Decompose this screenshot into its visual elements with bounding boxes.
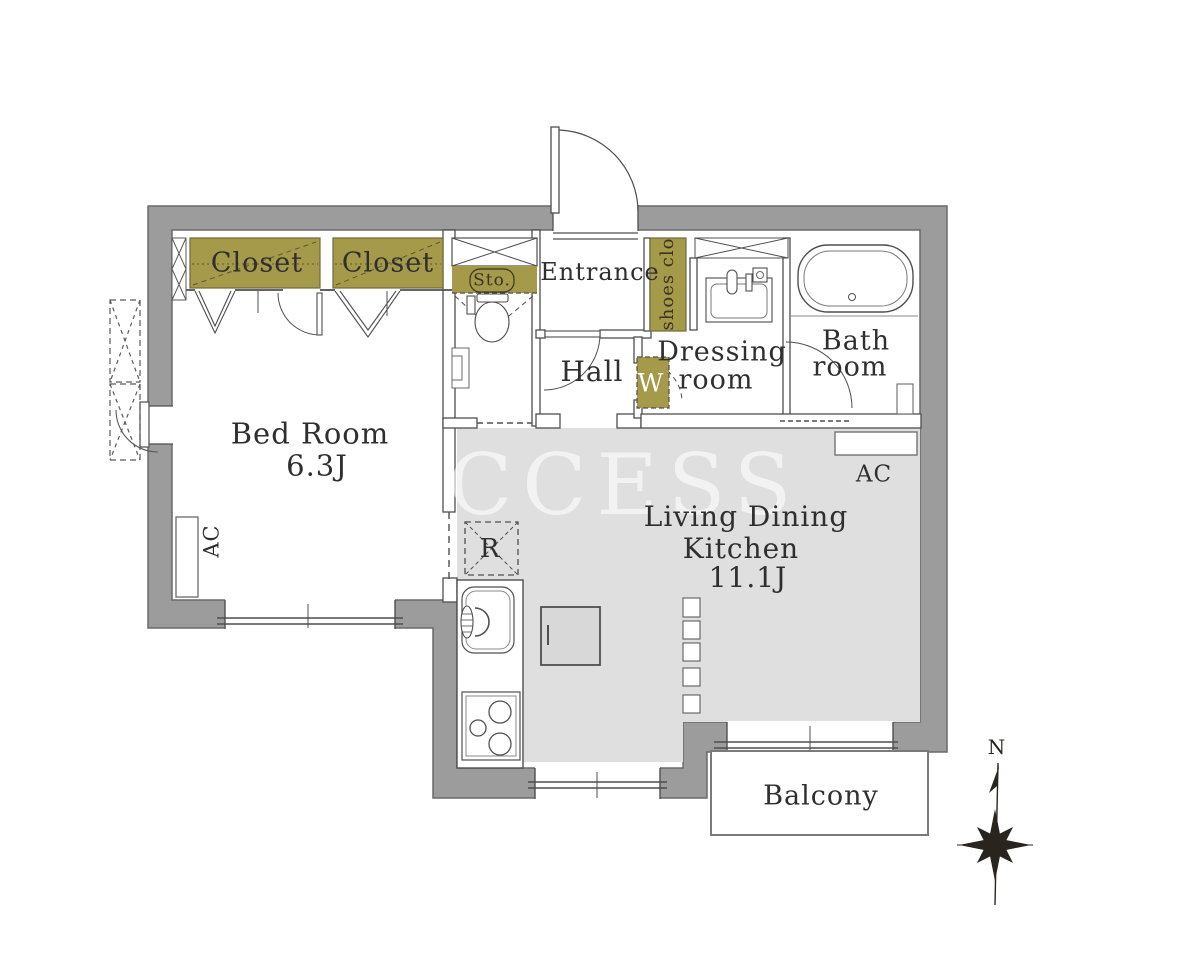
- label-dressing-line1: Dressing: [657, 339, 787, 366]
- label-closet-left: Closet: [211, 250, 303, 277]
- kitchen-sink-icon: [461, 587, 514, 653]
- label-hall: Hall: [560, 358, 623, 386]
- label-shoes-closet: shoes clo: [659, 238, 677, 331]
- service-opening-left-wall: [116, 402, 173, 452]
- kitchen-island: [541, 607, 600, 665]
- ac-unit-ldk: [835, 432, 917, 455]
- bath-drain-box: [897, 384, 913, 414]
- label-compass-north: N: [988, 737, 1007, 757]
- label-ldk-line1: Living Dining: [644, 503, 849, 531]
- label-bath-line2: room: [812, 354, 887, 381]
- compass-rose: [957, 763, 1033, 905]
- label-bath-line1: Bath: [822, 328, 890, 355]
- label-refrigerator: R: [480, 536, 501, 562]
- bathtub-icon: [790, 245, 918, 316]
- stove-icon: [462, 692, 520, 760]
- wall-duct-hatch: [172, 238, 186, 300]
- label-closet-right: Closet: [342, 250, 434, 277]
- label-washer: W: [638, 371, 665, 396]
- entrance-opening: [553, 204, 638, 239]
- toilet-icon: [467, 294, 509, 342]
- bedroom-window: [217, 599, 403, 629]
- label-dressing-line2: room: [678, 367, 753, 394]
- label-ac-bedroom: AC: [202, 524, 223, 557]
- entrance-door-swing: [551, 127, 638, 213]
- closet-folding-doors: [195, 291, 400, 337]
- ac-unit-bedroom: [176, 517, 198, 597]
- floor-plan-graphics: [0, 0, 1198, 965]
- toilet-shelf: [452, 348, 469, 388]
- kitchen-window: [528, 767, 667, 799]
- label-ldk-line2: Kitchen: [683, 535, 799, 563]
- label-ac-ldk: AC: [856, 464, 892, 487]
- label-bedroom-size: 6.3J: [286, 452, 348, 481]
- label-bedroom-name: Bed Room: [231, 420, 390, 449]
- washbasin-icon: [706, 268, 772, 322]
- living-window: [714, 721, 898, 753]
- floor-plan: CCESS Closet Closet Sto. Entrance shoes …: [0, 0, 1198, 965]
- label-balcony: Balcony: [763, 783, 879, 810]
- label-storage: Sto.: [473, 273, 511, 290]
- upper-cabinet-hatch: [695, 238, 788, 258]
- label-entrance: Entrance: [540, 260, 660, 284]
- label-ldk-size: 11.1J: [709, 564, 788, 592]
- closet-hinged-door: [278, 293, 322, 335]
- partition-post-squares: [683, 598, 700, 713]
